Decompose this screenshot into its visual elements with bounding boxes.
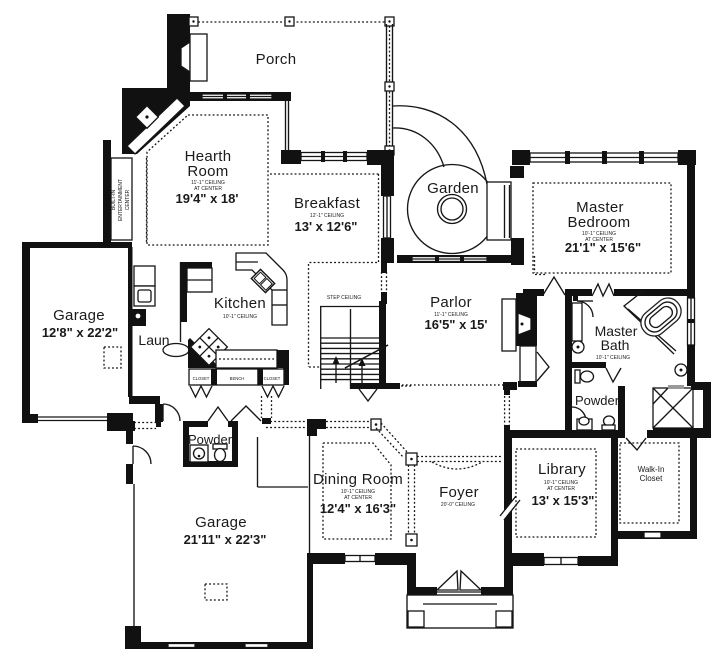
svg-text:BUILT-IN: BUILT-IN [111, 190, 117, 211]
svg-text:16'5" x 15': 16'5" x 15' [425, 317, 488, 332]
svg-text:Room: Room [187, 163, 228, 180]
svg-text:Powder: Powder [188, 432, 233, 447]
svg-text:19'4" x 18': 19'4" x 18' [176, 191, 239, 206]
svg-text:ENTERTAINMENT: ENTERTAINMENT [118, 179, 124, 221]
svg-text:Dining Room: Dining Room [313, 471, 403, 488]
svg-text:Laun: Laun [138, 332, 169, 348]
svg-text:12'8" x 22'2": 12'8" x 22'2" [42, 325, 118, 340]
svg-text:Porch: Porch [256, 51, 297, 68]
svg-text:Breakfast: Breakfast [294, 195, 361, 212]
svg-text:Garage: Garage [195, 514, 247, 531]
svg-text:10'-1" CEILING: 10'-1" CEILING [223, 314, 257, 320]
svg-text:Library: Library [538, 461, 586, 478]
svg-text:21'1" x 15'6": 21'1" x 15'6" [565, 240, 641, 255]
svg-text:20'-0" CEILING: 20'-0" CEILING [441, 502, 475, 508]
svg-text:Garden: Garden [427, 180, 479, 197]
svg-text:Powder: Powder [575, 393, 620, 408]
svg-text:CLOSET: CLOSET [264, 376, 281, 381]
svg-text:Parlor: Parlor [430, 294, 472, 311]
svg-text:BENCH: BENCH [230, 376, 245, 381]
svg-text:STEP CEILING: STEP CEILING [327, 295, 361, 301]
svg-text:12'4" x 16'3": 12'4" x 16'3" [320, 501, 396, 516]
svg-text:10'-1" CEILING: 10'-1" CEILING [596, 355, 630, 361]
svg-text:Closet: Closet [640, 474, 663, 483]
svg-text:AT CENTER: AT CENTER [547, 486, 575, 492]
svg-text:Bath: Bath [601, 337, 630, 353]
svg-text:Kitchen: Kitchen [214, 295, 266, 312]
svg-text:13' x 12'6": 13' x 12'6" [295, 219, 358, 234]
svg-text:CENTER: CENTER [125, 189, 131, 210]
svg-text:21'11" x 22'3": 21'11" x 22'3" [184, 532, 267, 547]
svg-text:13' x 15'3": 13' x 15'3" [532, 493, 595, 508]
svg-text:Foyer: Foyer [439, 484, 479, 501]
svg-text:CLOSET: CLOSET [193, 376, 210, 381]
svg-text:Walk-In: Walk-In [638, 465, 665, 474]
svg-text:Garage: Garage [53, 307, 105, 324]
svg-text:Bedroom: Bedroom [568, 214, 631, 231]
